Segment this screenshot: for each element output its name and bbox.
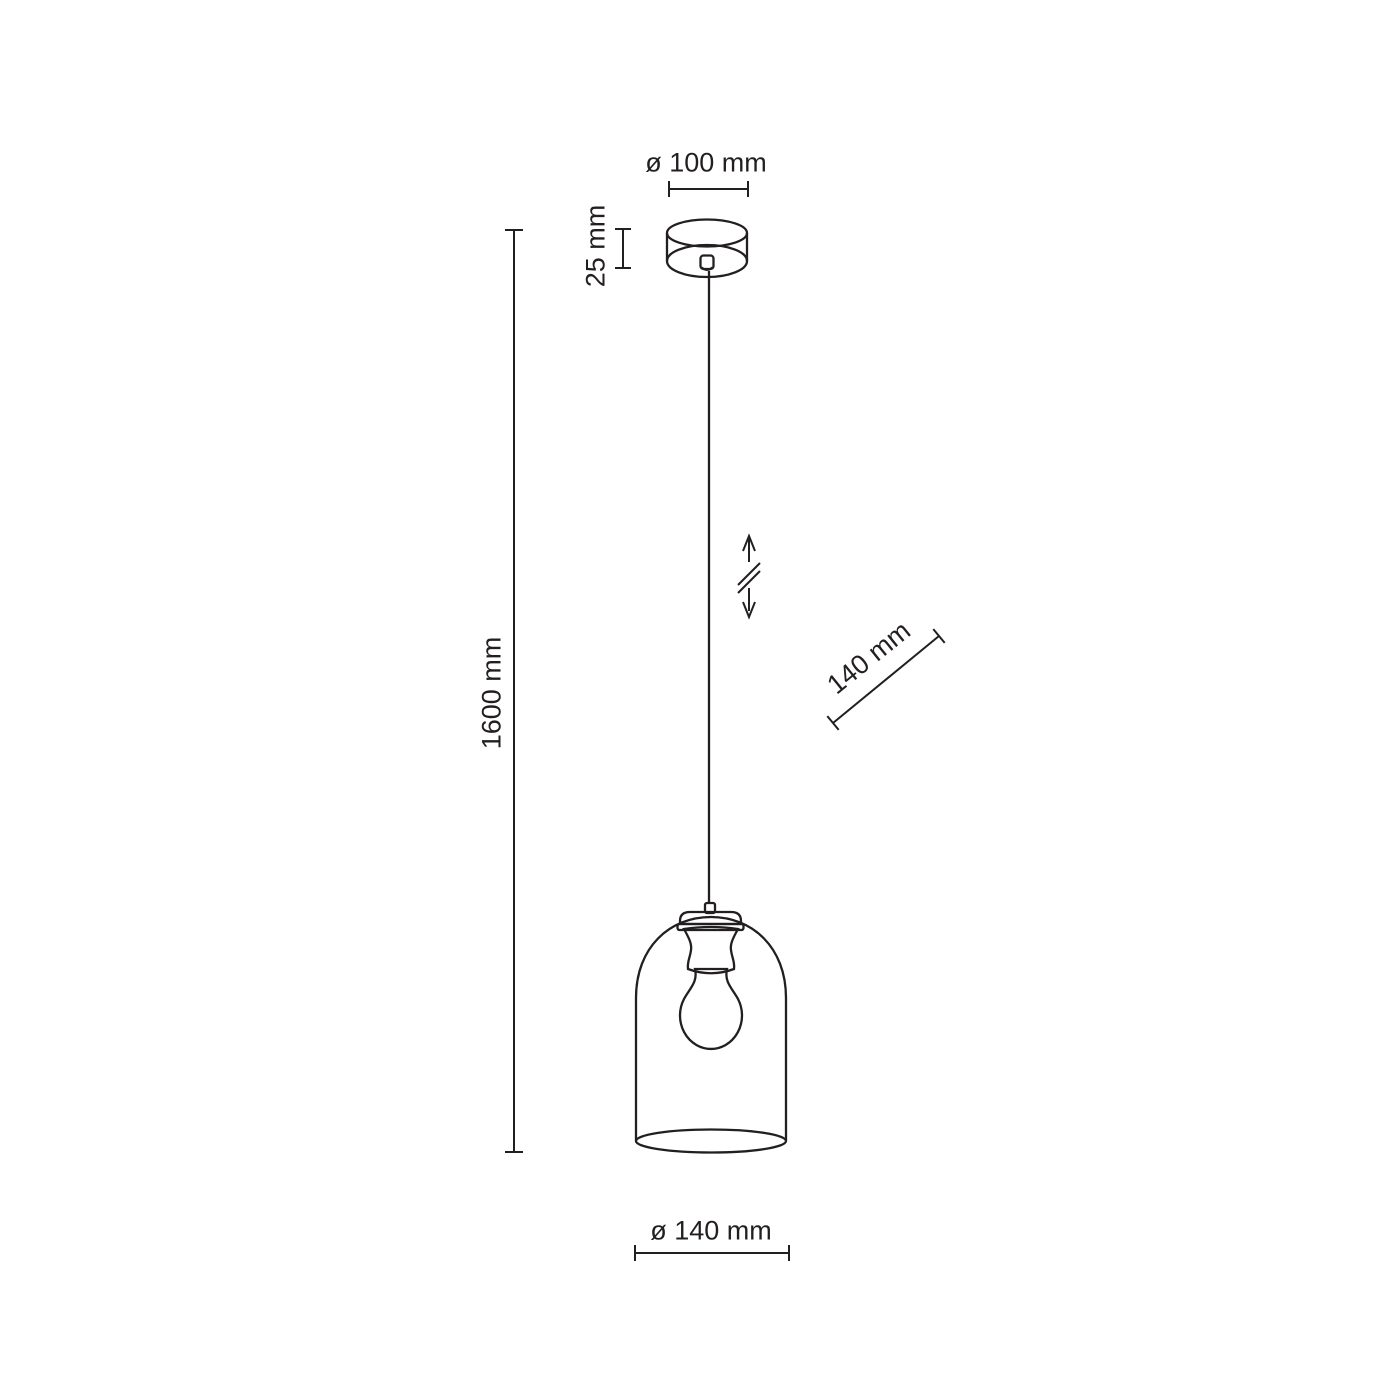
- canopy-diameter-dimension-line: [669, 181, 748, 197]
- canopy-bottom-ellipse: [667, 245, 747, 277]
- shade-bottom-rim: [636, 1130, 786, 1153]
- glass-shade: [636, 917, 786, 1153]
- shade-diameter-label: ø 140 mm: [650, 1218, 772, 1245]
- height-adjustment-icon: [738, 536, 760, 617]
- total-height-dimension-line: [505, 230, 523, 1152]
- tick: [827, 716, 838, 730]
- cord-grip-bottom: [702, 268, 713, 270]
- shade-outline: [636, 917, 786, 1141]
- pendant-lamp-dimension-drawing: ø 100 mm 25 mm 1600 mm 140 mm ø 140 mm: [0, 0, 1400, 1400]
- light-bulb: [680, 969, 742, 1049]
- lamp-socket: [684, 927, 738, 973]
- ceiling-canopy: [667, 220, 747, 278]
- drawing-canvas: [0, 0, 1400, 1400]
- canopy-top-ellipse: [667, 220, 747, 247]
- canopy-height-label: 25 mm: [583, 205, 610, 288]
- total-height-label: 1600 mm: [479, 637, 506, 750]
- canopy-diameter-label: ø 100 mm: [645, 150, 767, 177]
- canopy-height-dimension-line: [615, 229, 631, 268]
- tick: [933, 629, 944, 643]
- shade-diameter-dimension-line: [635, 1245, 789, 1261]
- dimension-lines: [505, 181, 945, 1261]
